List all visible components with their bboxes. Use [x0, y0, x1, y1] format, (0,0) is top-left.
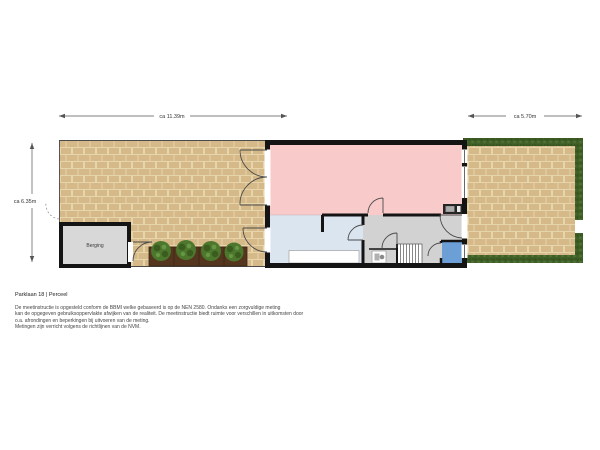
- dimension-depth: ca 6.35m: [14, 143, 37, 262]
- dimension-depth-label: ca 6.35m: [14, 199, 37, 205]
- hedge-bottom: [463, 255, 583, 263]
- living-room: [270, 145, 462, 215]
- shrub: [176, 240, 196, 260]
- footer: Parklaan 18 | Perceel De meetinstructie …: [15, 292, 303, 331]
- dimension-front-garden-width: ca 5.70m: [468, 114, 582, 120]
- plan-title: Parklaan 18 | Perceel: [15, 292, 303, 298]
- shrub: [225, 243, 244, 262]
- disclaimer-line: Metingen zijn verricht volgens de richtl…: [15, 324, 303, 330]
- front-garden: [463, 138, 583, 263]
- shrub: [201, 241, 221, 261]
- floorplan-canvas: ca 11.39m ca 5.70m ca 6.35m: [0, 0, 600, 450]
- front-garden-paving: [467, 146, 575, 255]
- hedge-top: [463, 138, 583, 146]
- hedge-right-upper: [575, 138, 583, 220]
- staircase: [397, 244, 422, 265]
- garden-gate-swing: [46, 202, 59, 219]
- sink-unit: [443, 204, 462, 214]
- floorplan-drawing: ca 11.39m ca 5.70m ca 6.35m: [0, 0, 600, 450]
- house: [240, 143, 468, 266]
- kitchen-counter: [289, 251, 359, 264]
- disclaimer-line: kan de opgegeven gebruiksoppervlakte afw…: [15, 311, 303, 317]
- disclaimer: De meetinstructie is opgesteld conform d…: [15, 305, 303, 331]
- dimension-back-garden-label: ca 11.39m: [159, 114, 185, 120]
- shed-label: Berging: [86, 243, 103, 249]
- dimension-front-garden-label: ca 5.70m: [514, 114, 537, 120]
- shrub: [151, 241, 171, 261]
- shed-door-opening: [128, 242, 133, 262]
- dimension-back-garden-width: ca 11.39m: [59, 114, 287, 120]
- back-garden: Berging: [46, 140, 267, 267]
